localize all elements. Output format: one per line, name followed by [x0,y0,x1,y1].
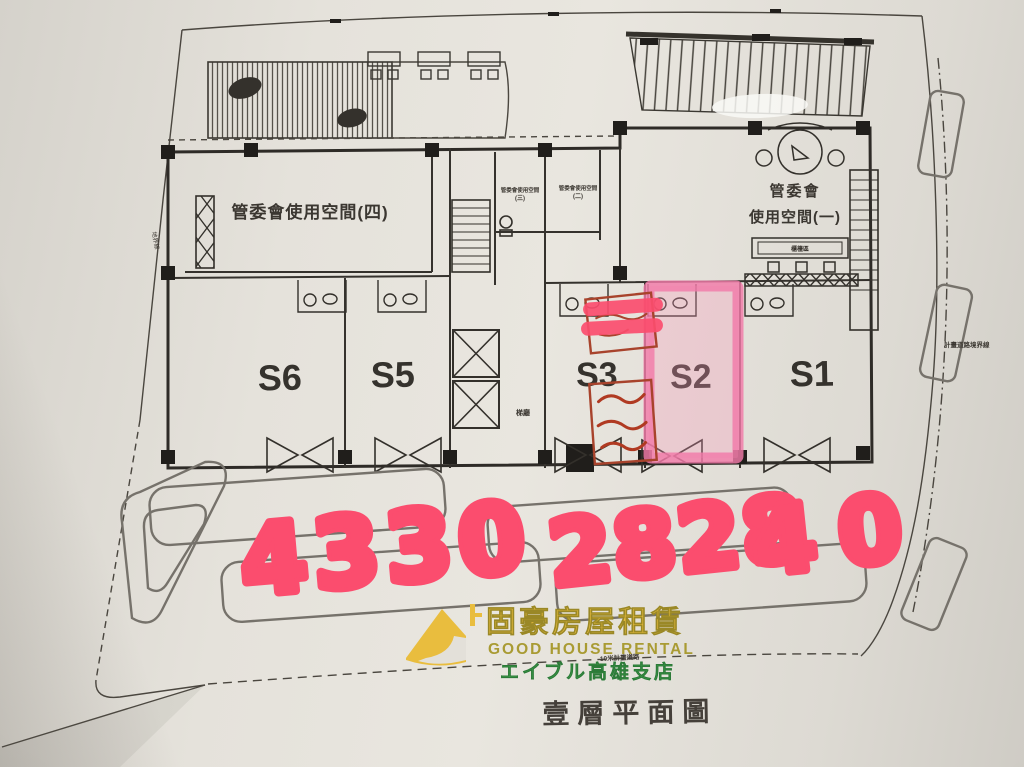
logo-name-zh: 固豪房屋租賃 [486,605,684,639]
unit-s2-highlight [649,286,738,458]
logo-branch: エイブル高雄支店 [500,660,676,683]
handwritten-numbers: 4330 2828 40 [236,472,930,618]
room3-number: (三) [515,195,525,202]
room1-label-line2: 使用空間(一) [748,208,841,226]
unit-label-s5: S5 [370,354,415,396]
handwritten-price-left: 4330 [236,481,536,618]
elevator-hall-label: 梯廳 [516,408,530,417]
room2-label: 管委會使用空間 [559,184,598,192]
vehicle-ramp [626,34,874,120]
logo-name-en: GOOD HOUSE RENTAL [488,641,695,658]
room2-number: (二) [573,193,583,200]
garden-terrace [208,62,509,138]
room3-label: 管委會使用空間 [501,186,540,194]
unit-label-s6: S6 [257,357,302,399]
agency-logo: 固豪房屋租賃 GOOD HOUSE RENTAL エイブル高雄支店 [406,604,695,683]
reception-desk [752,238,848,272]
structural-columns [161,121,870,472]
outdoor-tables [368,52,500,79]
room1-label-line1: 管委會 [769,182,820,200]
unit-label-s3: S3 [576,356,618,395]
handwritten-price-right: 40 [747,472,929,596]
floor-plan-drawing: 管委會使用空間(四) 管委會 使用空間(一) 管委會使用空間 (三) 管委會使用… [0,0,1024,767]
unit-label-s1: S1 [789,353,834,395]
building-walls [168,128,872,468]
hall-furnishings [745,123,858,286]
house-icon [406,604,482,666]
sheet-title: 壹層平面圖 [542,696,717,729]
hedge-fence [745,274,858,286]
floor-plan-photo: 管委會使用空間(四) 管委會 使用空間(一) 管委會使用空間 (三) 管委會使用… [0,0,1024,767]
boundary-label-right: 計畫道路境界線 [944,340,990,349]
room4-label: 管委會使用空間(四) [231,202,388,222]
elevator-icon [453,330,499,428]
counter-label: 櫃檯區 [791,245,809,253]
